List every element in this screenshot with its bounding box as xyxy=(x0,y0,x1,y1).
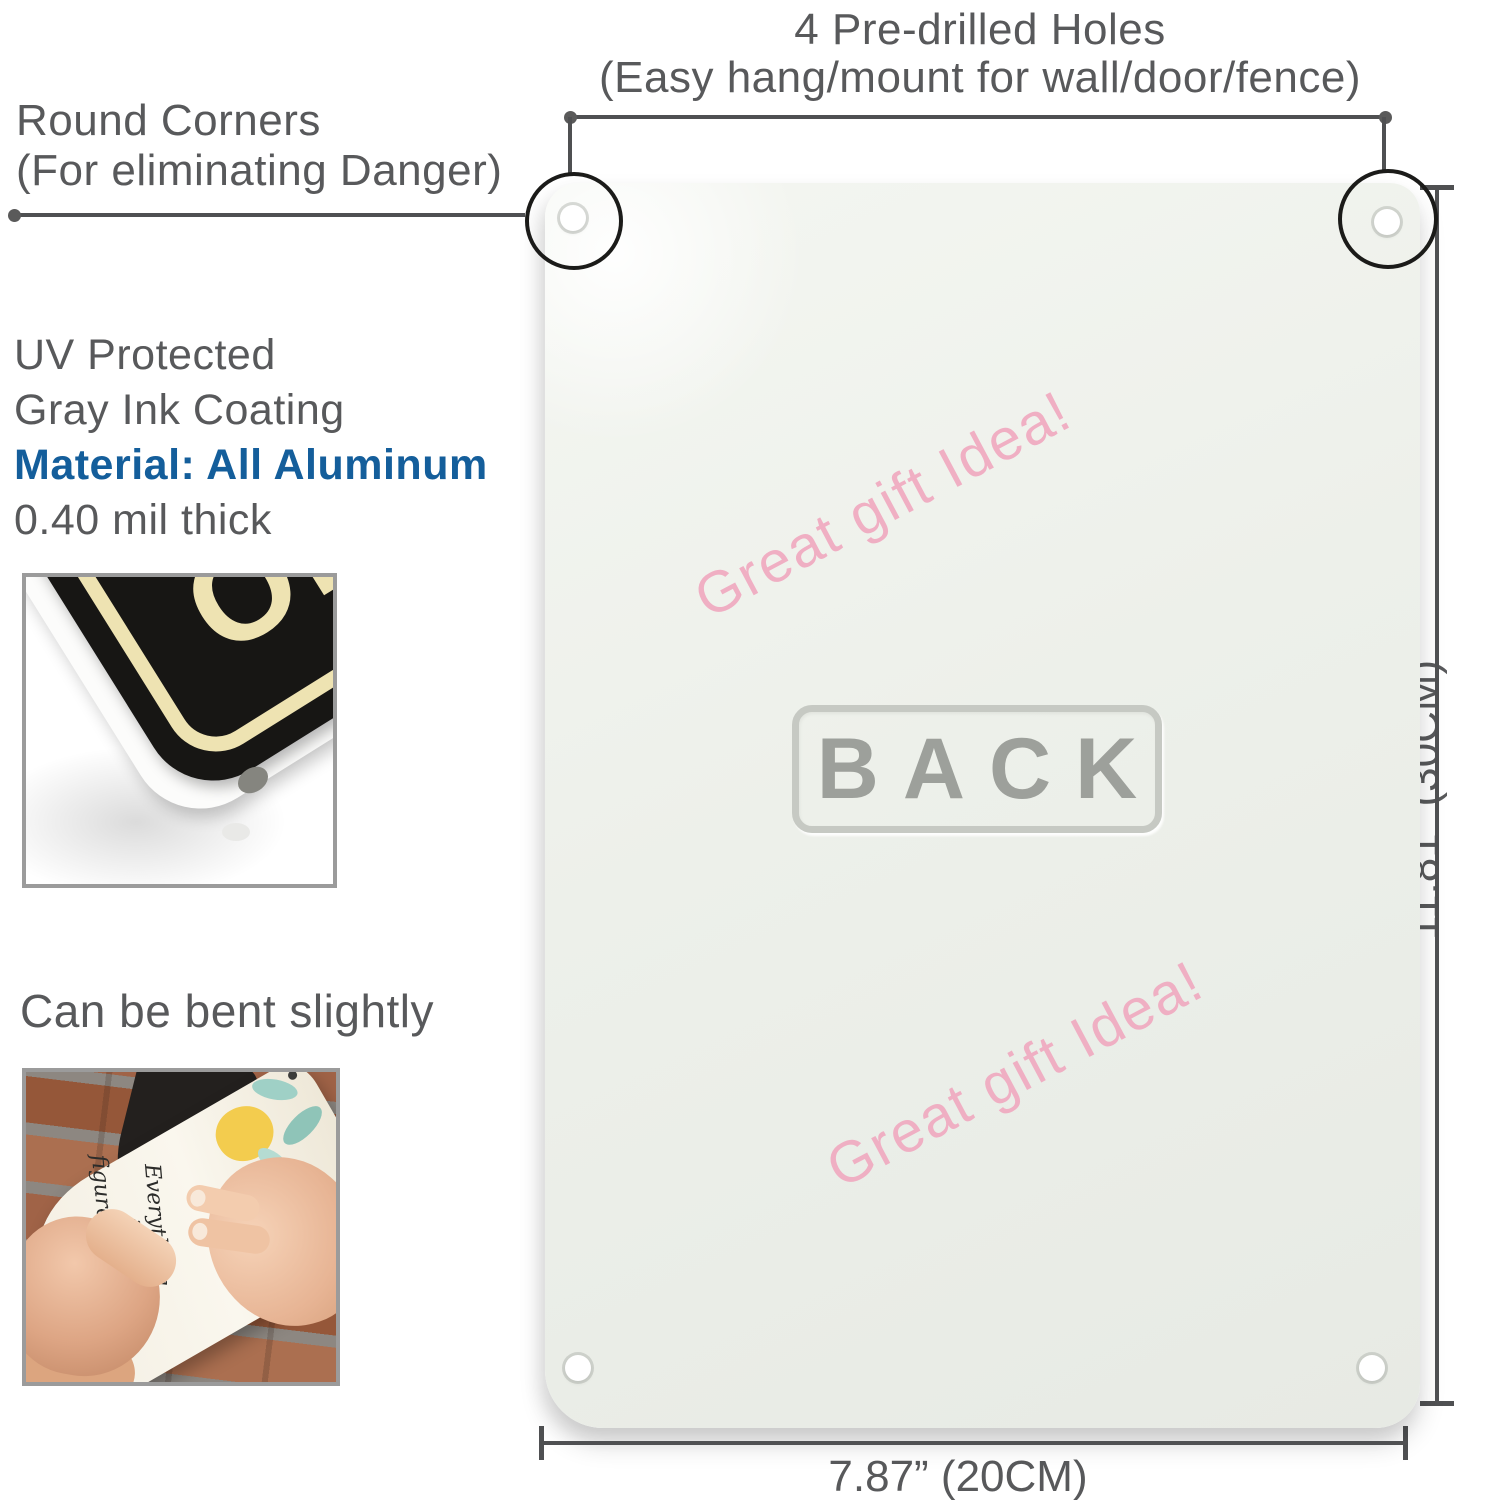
width-dimension-line xyxy=(541,1441,1407,1445)
bracket-left-drop-line xyxy=(568,117,572,173)
material-line-thickness: 0.40 mil thick xyxy=(14,493,488,548)
round-corners-callout-dot xyxy=(8,209,21,222)
top-left-hole-ring xyxy=(525,172,623,270)
material-line-uv: UV Protected xyxy=(14,328,488,383)
inset-photo-bending: Everything is figureoutable xyxy=(22,1068,340,1386)
round-corners-note: Round Corners (For eliminating Danger) xyxy=(16,96,502,196)
back-label: BACK xyxy=(793,720,1161,819)
leaf-graphic xyxy=(277,1100,328,1151)
inset-photo-sign-corner: D OR R xyxy=(22,573,337,888)
round-corners-title: Round Corners xyxy=(16,96,502,146)
material-note: UV Protected Gray Ink Coating Material: … xyxy=(14,328,488,548)
back-label-plate: BACK xyxy=(792,705,1162,833)
material-line-aluminum: Material: All Aluminum xyxy=(14,438,488,493)
sign-corner-hole-faint xyxy=(222,823,250,841)
pre-drilled-hole-bottom-right xyxy=(1359,1355,1385,1381)
bent-sign-hole xyxy=(286,1069,298,1081)
fingernail xyxy=(191,1222,208,1241)
gift-idea-watermark-upper: Great gift Idea! xyxy=(684,377,1082,631)
width-dimension-label: 7.87” (20CM) xyxy=(828,1452,1087,1500)
bend-note: Can be bent slightly xyxy=(20,986,434,1036)
gift-idea-watermark-lower: Great gift Idea! xyxy=(816,947,1214,1201)
height-dimension-line xyxy=(1435,187,1439,1405)
pre-drilled-holes-subtitle: (Easy hang/mount for wall/door/fence) xyxy=(545,54,1415,102)
sign-back-panel: Great gift Idea! Great gift Idea! BACK xyxy=(545,183,1420,1428)
material-line-coating: Gray Ink Coating xyxy=(14,383,488,438)
pre-drilled-holes-note: 4 Pre-drilled Holes (Easy hang/mount for… xyxy=(545,6,1415,102)
pre-drilled-holes-title: 4 Pre-drilled Holes xyxy=(545,6,1415,54)
round-corners-callout-line xyxy=(12,213,525,217)
pre-drilled-hole-bottom-left xyxy=(565,1355,591,1381)
bracket-horizontal-line xyxy=(570,115,1386,119)
fingernail xyxy=(189,1188,207,1208)
round-corners-subtitle: (For eliminating Danger) xyxy=(16,146,502,196)
product-infographic: 4 Pre-drilled Holes (Easy hang/mount for… xyxy=(0,0,1495,1500)
bracket-right-drop-line xyxy=(1382,117,1386,170)
top-right-hole-ring xyxy=(1338,169,1438,269)
